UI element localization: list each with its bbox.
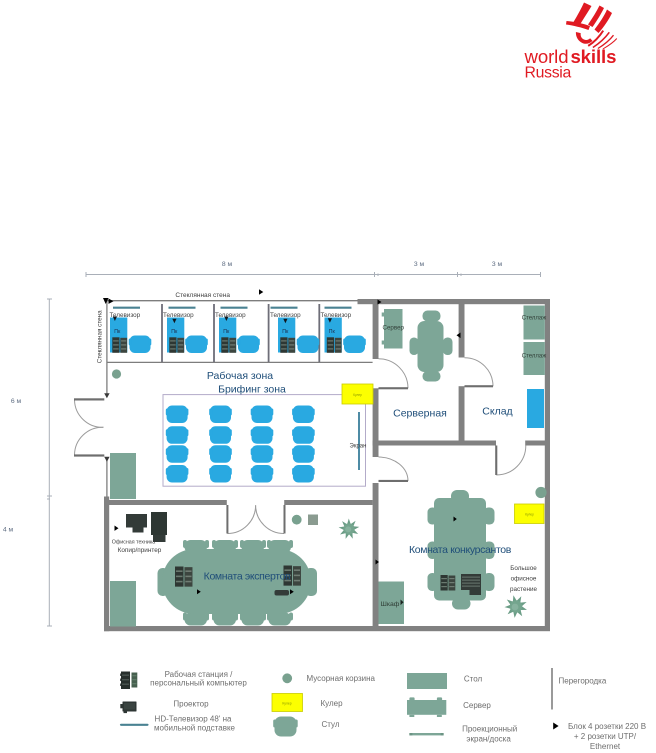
svg-text:офисное: офисное <box>511 576 537 583</box>
svg-text:Рабочая зона: Рабочая зона <box>207 370 273 382</box>
svg-text:Кулер: Кулер <box>320 699 343 708</box>
svg-text:Кулер: Кулер <box>525 513 534 517</box>
svg-text:Склад: Склад <box>482 406 512 418</box>
svg-text:Russia: Russia <box>525 65 572 82</box>
svg-text:4 м: 4 м <box>3 527 14 534</box>
svg-text:мобильной подставке: мобильной подставке <box>154 724 236 733</box>
svg-text:Стеллаж: Стеллаж <box>522 354 547 360</box>
svg-text:персональный компьютер: персональный компьютер <box>150 679 247 688</box>
svg-text:Пк: Пк <box>171 329 178 335</box>
svg-text:+ 2 розетки UTP/: + 2 розетки UTP/ <box>574 732 637 741</box>
svg-text:Стеллаж: Стеллаж <box>522 316 547 322</box>
svg-text:Большое: Большое <box>510 565 537 572</box>
svg-text:Копир/принтер: Копир/принтер <box>118 547 162 554</box>
svg-text:8 м: 8 м <box>222 261 233 268</box>
svg-text:Пк: Пк <box>114 329 121 335</box>
svg-text:Блок 4 розетки 220 В: Блок 4 розетки 220 В <box>568 722 646 731</box>
svg-text:Экран: Экран <box>350 444 367 450</box>
svg-text:3 м: 3 м <box>492 261 503 268</box>
svg-text:Кулер: Кулер <box>353 393 362 397</box>
svg-text:Мусорная корзина: Мусорная корзина <box>307 674 376 683</box>
svg-text:Пк: Пк <box>329 329 336 335</box>
svg-text:Проекционный: Проекционный <box>462 724 517 733</box>
svg-text:экран/доска: экран/доска <box>466 735 511 744</box>
svg-text:Брифинг зона: Брифинг зона <box>218 384 286 396</box>
svg-text:Сервер: Сервер <box>383 325 405 332</box>
svg-text:Шкаф: Шкаф <box>381 601 400 608</box>
svg-text:6 м: 6 м <box>11 398 22 405</box>
svg-text:Комната конкурсантов: Комната конкурсантов <box>409 544 512 556</box>
svg-text:Ethernet: Ethernet <box>590 742 621 751</box>
svg-text:Стеклянная стена: Стеклянная стена <box>97 310 104 363</box>
svg-text:Серверная: Серверная <box>393 408 447 420</box>
svg-text:Стул: Стул <box>321 720 339 729</box>
svg-text:HD-Телевизор 48' на: HD-Телевизор 48' на <box>155 714 232 723</box>
svg-text:растение: растение <box>510 586 537 593</box>
svg-text:Комната экспертов: Комната экспертов <box>204 571 291 583</box>
svg-text:Проектор: Проектор <box>173 700 209 709</box>
svg-text:Пк: Пк <box>282 329 289 335</box>
svg-text:Кулер: Кулер <box>282 702 291 706</box>
svg-text:Стол: Стол <box>464 675 483 684</box>
svg-text:Стеклянная стена: Стеклянная стена <box>175 292 230 299</box>
svg-text:3 м: 3 м <box>414 261 425 268</box>
svg-text:Офисная техника: Офисная техника <box>112 540 155 546</box>
svg-text:Сервер: Сервер <box>463 701 491 710</box>
svg-text:Пк: Пк <box>223 329 230 335</box>
svg-text:Перегородка: Перегородка <box>559 677 607 686</box>
